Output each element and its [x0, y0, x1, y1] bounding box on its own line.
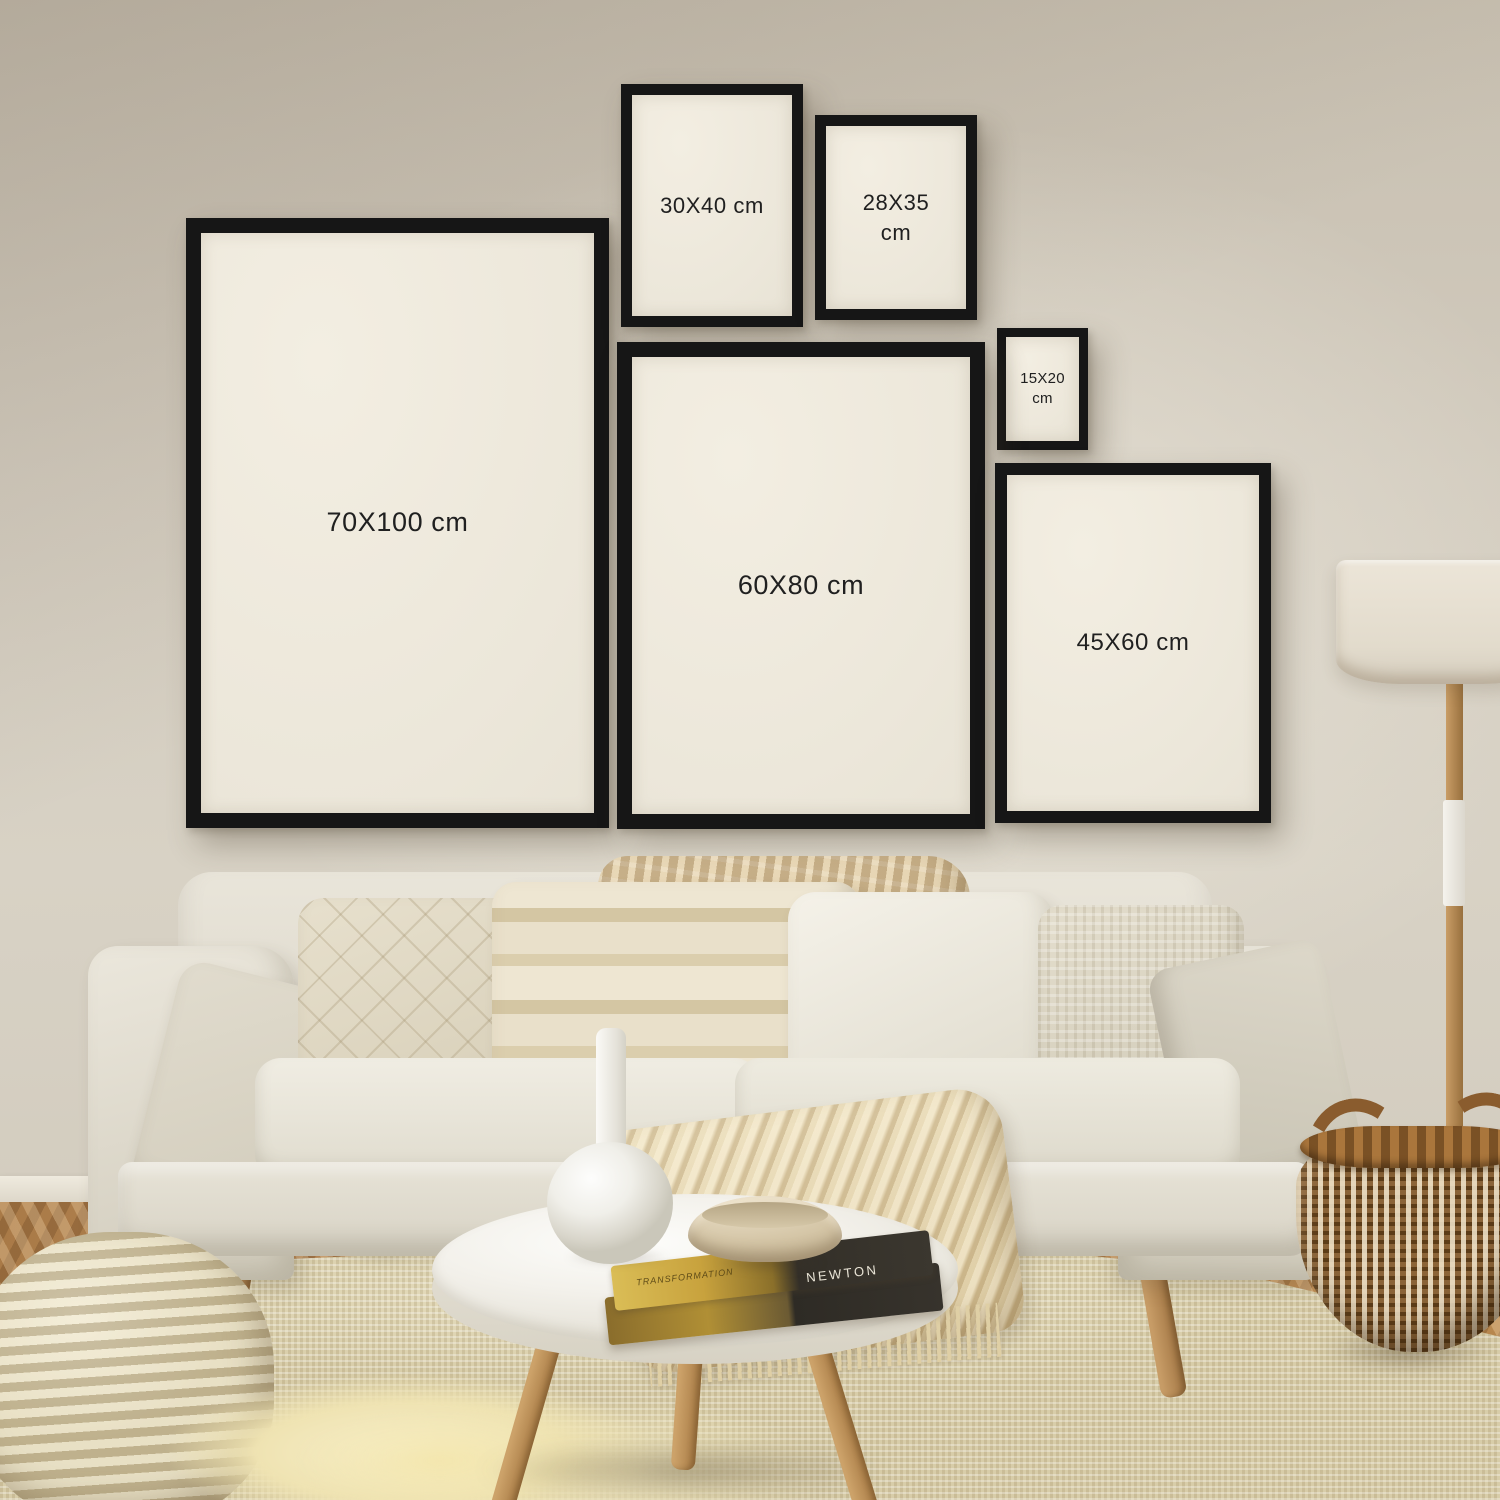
frame-60x80-label: 60X80 cm: [738, 568, 864, 604]
frame-60x80: 60X80 cm: [617, 342, 985, 829]
frame-30x40-label: 30X40 cm: [660, 191, 764, 220]
living-room-frame-size-mockup: 70X100 cm 30X40 cm 28X35 cm 15X20 cm 60X…: [0, 0, 1500, 1500]
bowl-inner: [702, 1202, 828, 1228]
frame-28x35: 28X35 cm: [815, 115, 977, 320]
frame-28x35-label: 28X35 cm: [854, 188, 938, 246]
frame-15x20: 15X20 cm: [997, 328, 1088, 450]
white-vase: [547, 1142, 673, 1264]
frame-70x100-label: 70X100 cm: [327, 505, 469, 541]
frame-15x20-label: 15X20 cm: [1017, 369, 1069, 409]
frame-45x60: 45X60 cm: [995, 463, 1271, 823]
frame-70x100: 70X100 cm: [186, 218, 609, 828]
frame-45x60-label: 45X60 cm: [1077, 627, 1190, 659]
floor-lamp-shade: [1336, 560, 1500, 684]
frame-30x40: 30X40 cm: [621, 84, 803, 327]
floor-lamp-white-band: [1443, 800, 1465, 906]
basket-rim: [1300, 1126, 1500, 1168]
